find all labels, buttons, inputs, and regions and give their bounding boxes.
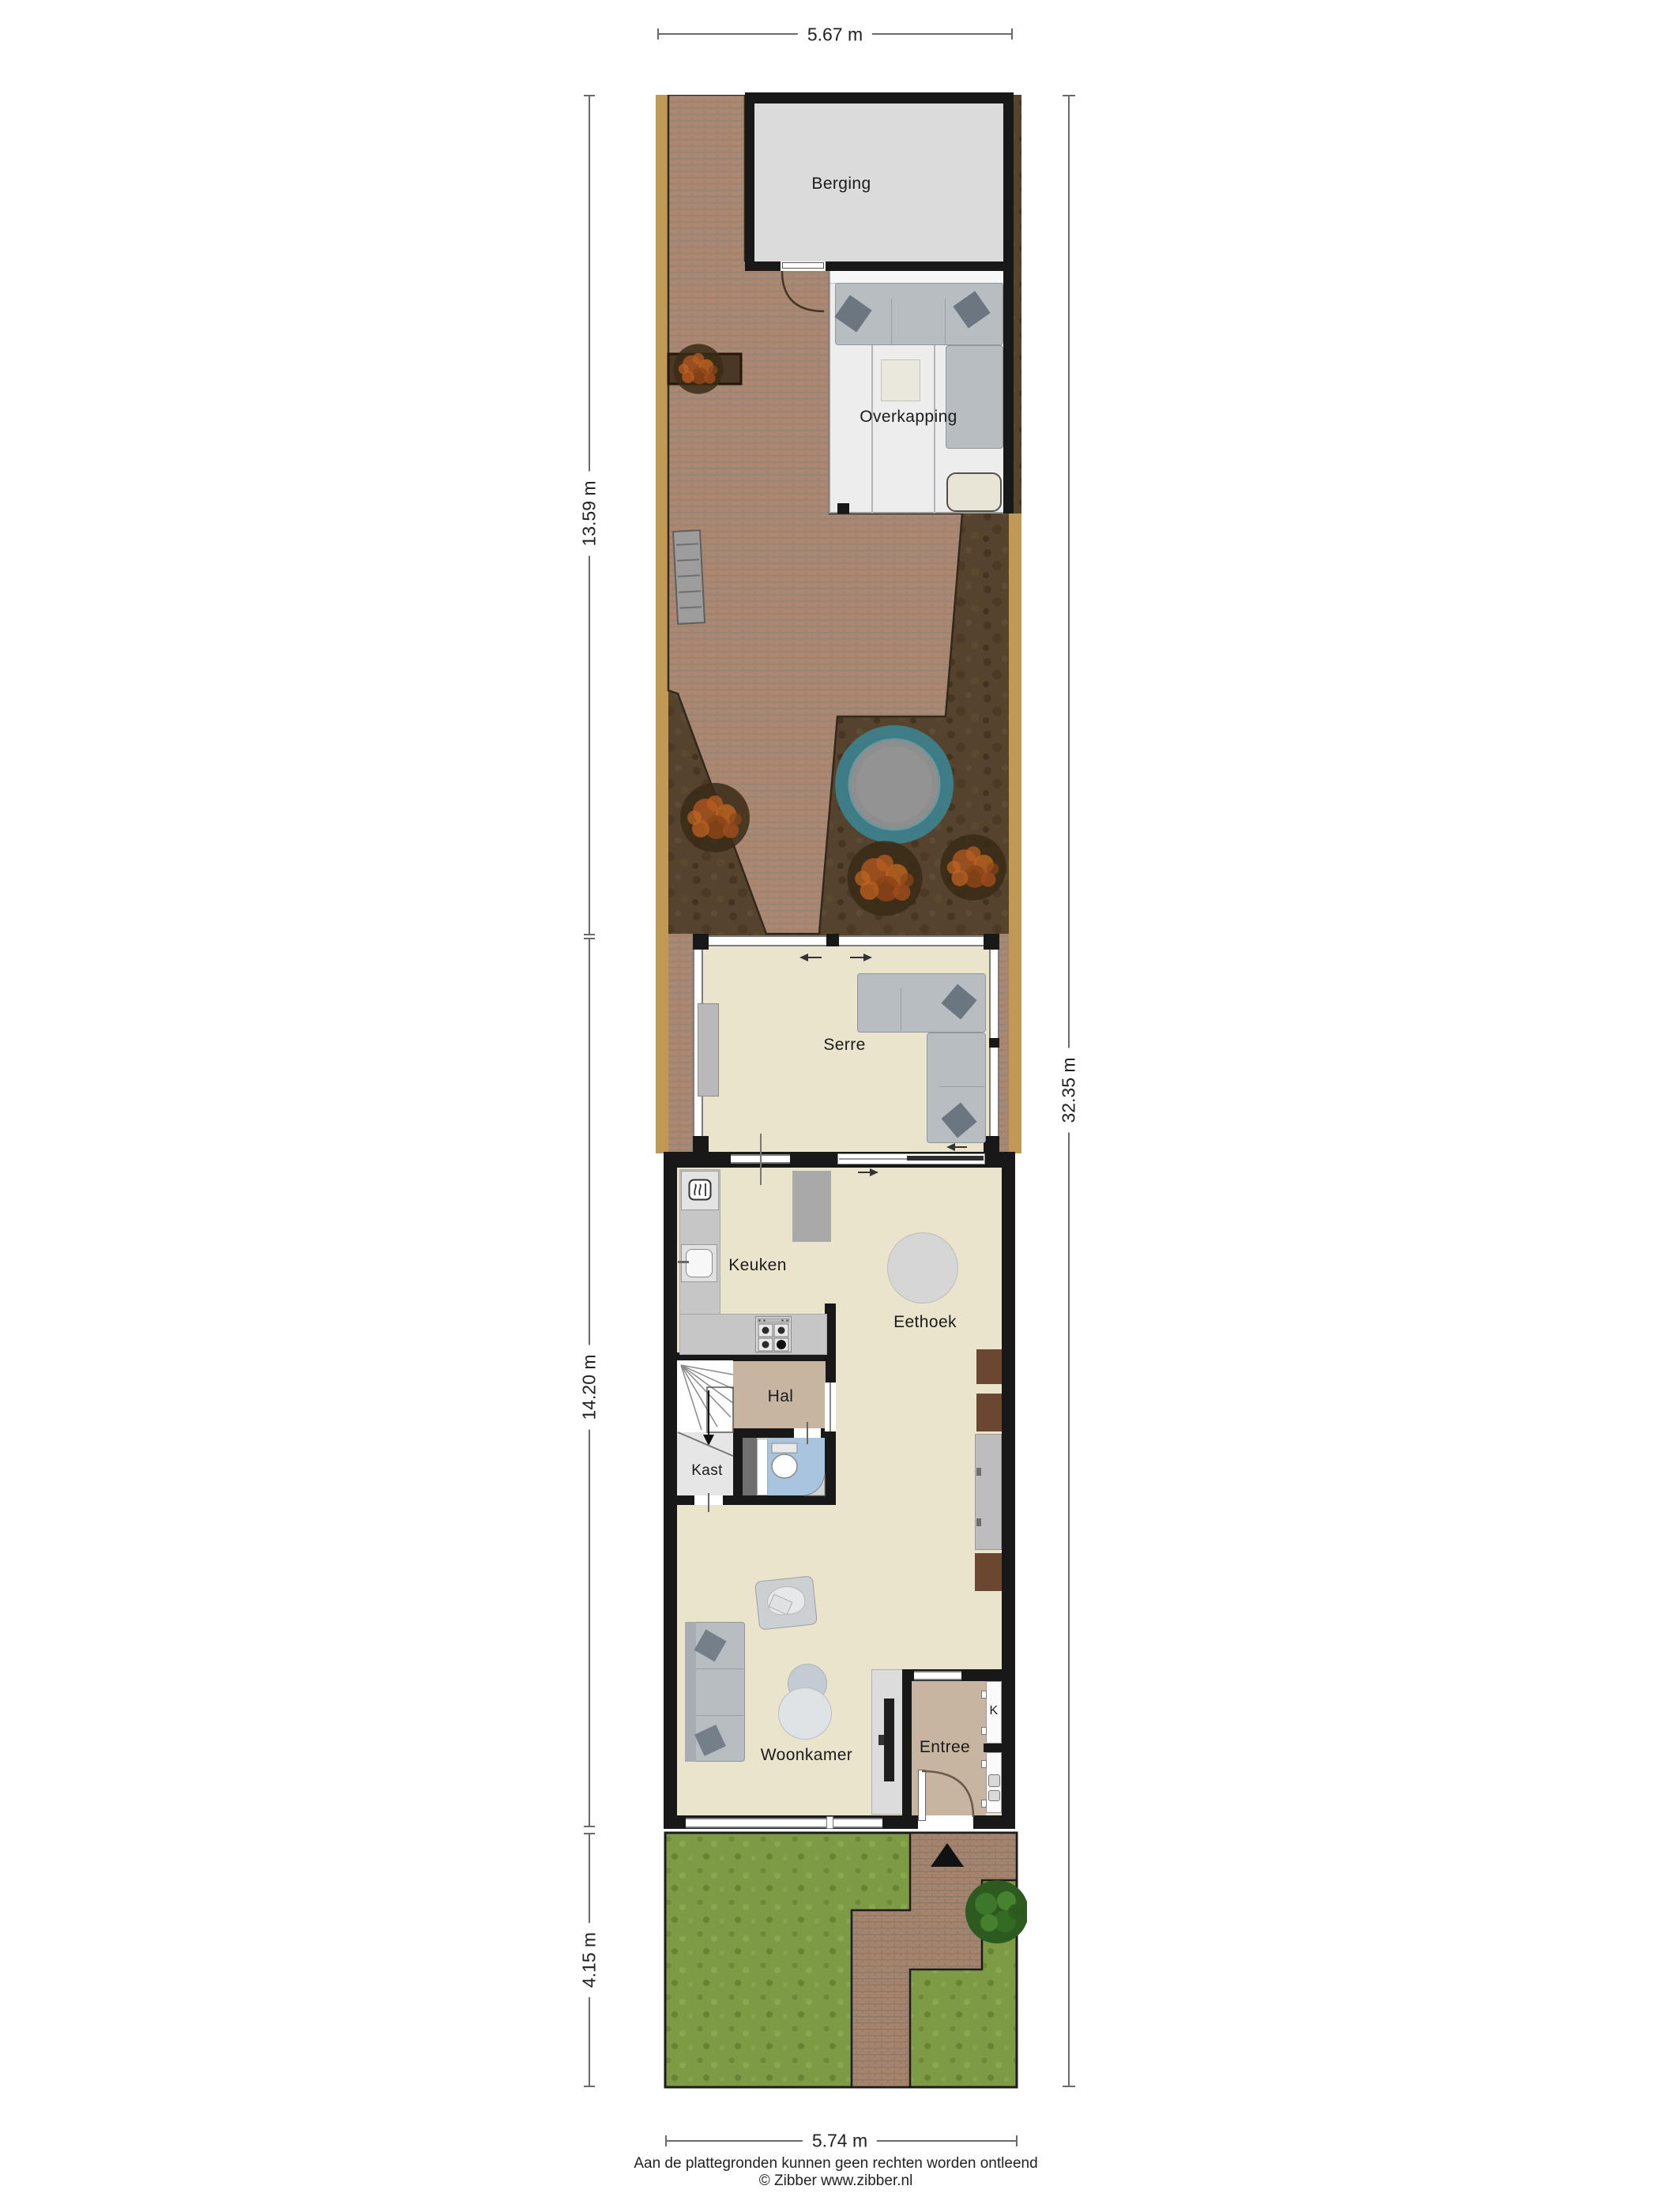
garden-border-left	[656, 95, 668, 1153]
woonkamer-window	[686, 1818, 882, 1828]
footer-credit: © Zibber www.zibber.nl	[759, 2172, 913, 2190]
front-garden-canvas	[656, 1825, 1027, 2093]
toilet-floor	[768, 1438, 825, 1495]
dimension-label-left-front: 4.15 m	[579, 1923, 600, 1997]
garden-shrub	[940, 834, 1006, 901]
floorplan-page: 5.67 m 13.59 m 14.20 m 4.15 m 32.35 m 5.…	[0, 0, 1659, 2212]
overkapping-chair	[946, 472, 1002, 512]
garden-border-right	[1009, 513, 1021, 1153]
dimension-tick	[584, 1833, 595, 1834]
dimension-label-left-house: 14.20 m	[579, 1345, 600, 1429]
sofa-seat-line	[945, 299, 946, 344]
dimension-tick	[657, 28, 659, 39]
overkapping-sofa	[946, 345, 1003, 449]
brick-strip-right-of-serre	[999, 934, 1009, 1153]
front-path	[852, 1833, 1017, 2087]
closet-door-tick	[981, 1760, 987, 1768]
dimension-tick	[665, 2135, 667, 2146]
room-label-hal: Hal	[768, 1387, 794, 1406]
kast-door-tick	[708, 1493, 709, 1512]
planter-shrub	[673, 344, 723, 393]
stove	[755, 1316, 792, 1352]
front-bush	[965, 1880, 1027, 1943]
serre-cabinet	[698, 1003, 719, 1097]
wall-cabinet-brown	[976, 1394, 1002, 1431]
dining-table	[887, 1232, 958, 1303]
dimension-tick	[584, 2086, 595, 2087]
dimension-tick	[1063, 95, 1075, 96]
serre-corner-post	[693, 1136, 709, 1152]
overkapping-right-wall	[1003, 271, 1014, 513]
living-sofa-back	[685, 1622, 696, 1762]
sofa-seat-line	[901, 987, 901, 1031]
section-line	[760, 1134, 762, 1185]
overkapping-post	[837, 503, 849, 513]
dimension-label-bottom: 5.74 m	[803, 2131, 877, 2152]
meter-appliance	[988, 1774, 1000, 1787]
room-label-entree: Entree	[920, 1738, 970, 1757]
dimension-label-right-total: 32.35 m	[1059, 1048, 1080, 1132]
room-label-keuken: Keuken	[728, 1256, 787, 1275]
overkapping-edge	[829, 271, 830, 513]
room-label-eethoek: Eethoek	[893, 1313, 957, 1332]
dimension-tick	[584, 1826, 595, 1827]
overkapping-edge	[829, 512, 1003, 513]
sideboard-handle	[976, 1518, 981, 1526]
stairs-area	[677, 1360, 733, 1432]
hal-door-leaf	[829, 1382, 831, 1431]
dimension-tick	[584, 938, 595, 939]
toilet-duct	[743, 1438, 757, 1495]
berging-floor	[754, 103, 1003, 261]
front-door-opening	[918, 1815, 973, 1829]
closet-door-tick	[981, 1691, 987, 1698]
coffee-table-large	[778, 1687, 832, 1740]
overkapping-tile-band	[829, 271, 1003, 284]
serre-top-glazing	[709, 935, 984, 946]
tv-stand	[878, 1735, 884, 1745]
entree-window	[914, 1671, 961, 1680]
fridge	[681, 1171, 719, 1210]
dimension-tick	[584, 934, 595, 935]
dimension-tick	[1063, 2086, 1075, 2087]
closet-door-tick	[981, 1800, 987, 1808]
room-label-berging: Berging	[811, 175, 871, 194]
meter-appliance	[988, 1790, 1000, 1801]
window-tick	[826, 1816, 833, 1829]
sofa-seat-line	[891, 299, 892, 344]
closet-door-tick	[981, 1727, 987, 1735]
berging-door-leaf	[782, 262, 824, 269]
garden-shrub	[680, 783, 750, 852]
dimension-tick	[1011, 28, 1013, 39]
garden-shrub	[847, 841, 922, 916]
kitchen-sink-basin	[686, 1249, 713, 1277]
dimension-tick	[584, 95, 595, 96]
sofa-seat-line	[940, 1086, 984, 1087]
dimension-label-left-garden: 13.59 m	[579, 471, 600, 555]
room-label-kast: Kast	[691, 1462, 723, 1480]
room-label-serre: Serre	[823, 1036, 865, 1055]
wall-woonkamer-entree	[902, 1669, 912, 1829]
toilet-door-tick	[807, 1422, 808, 1444]
wall-closet-divider	[984, 1744, 1002, 1752]
kitchen-island	[792, 1171, 831, 1242]
sofa-seat-line	[696, 1668, 744, 1669]
entrance-arrow-icon	[931, 1843, 964, 1867]
wall-cabinet-brown	[975, 1553, 1002, 1591]
room-label-woonkamer: Woonkamer	[761, 1746, 852, 1765]
planter-box	[668, 354, 741, 384]
serre-mullion	[989, 1038, 999, 1048]
serre-corner-post	[693, 934, 709, 950]
tv-screen	[884, 1698, 894, 1781]
brick-strip-left-of-serre	[668, 934, 693, 1153]
sink-faucet	[678, 1261, 689, 1263]
serre-corner-post	[984, 1136, 999, 1152]
front-door-leaf	[918, 1770, 926, 1821]
serre-corner-post	[984, 934, 999, 950]
garden-border-top	[656, 95, 750, 100]
trampoline	[835, 725, 954, 844]
toilet-door-leaf	[757, 1439, 768, 1495]
berging-door-swing	[782, 271, 824, 311]
front-lawn	[665, 1833, 1017, 2087]
room-label-overkapping: Overkapping	[860, 408, 957, 427]
sideboard-gray	[975, 1434, 1002, 1550]
wall-cabinet-brown	[976, 1349, 1002, 1384]
room-label-closet-k: K	[989, 1704, 998, 1718]
sideboard-handle	[976, 1468, 981, 1476]
garden-bench	[673, 530, 705, 624]
sofa-seat-line	[696, 1715, 744, 1716]
dimension-tick	[1016, 2135, 1018, 2146]
footer-disclaimer: Aan de plattegronden kunnen geen rechten…	[634, 2155, 1037, 2172]
kitchen-counter	[679, 1314, 827, 1355]
dimension-label-top: 5.67 m	[798, 24, 872, 46]
wall-kast-toilet	[733, 1432, 743, 1505]
overkapping-side-table	[881, 359, 920, 401]
serre-mullion	[826, 934, 839, 946]
sliding-door-leaf	[907, 1156, 984, 1161]
